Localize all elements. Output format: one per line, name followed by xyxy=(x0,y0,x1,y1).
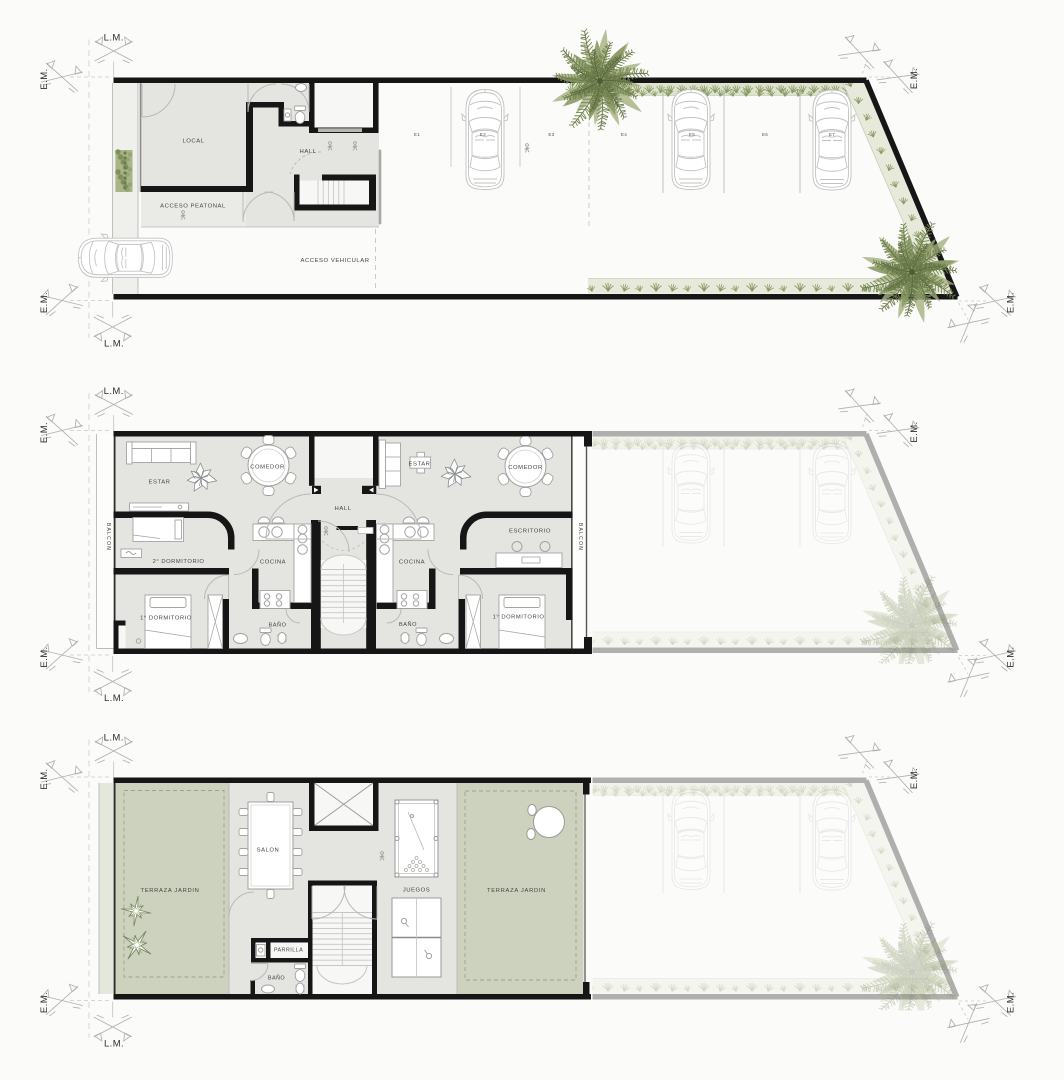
svg-text:E.M.: E.M. xyxy=(39,768,50,789)
svg-text:L.M.: L.M. xyxy=(104,1039,124,1050)
svg-text:1° DORMITORIO: 1° DORMITORIO xyxy=(140,616,192,622)
svg-text:LOCAL: LOCAL xyxy=(182,139,204,145)
svg-text:1° DORMITORIO: 1° DORMITORIO xyxy=(493,615,545,621)
svg-text:BALCON: BALCON xyxy=(577,523,583,551)
svg-text:TERRAZA JARDIN: TERRAZA JARDIN xyxy=(487,888,546,894)
svg-text:COMEDOR: COMEDOR xyxy=(250,465,285,471)
svg-text:L.M.: L.M. xyxy=(104,386,124,397)
svg-text:PARRILLA: PARRILLA xyxy=(274,948,303,954)
svg-text:L.M.: L.M. xyxy=(104,33,124,44)
svg-text:E.M.: E.M. xyxy=(39,68,50,89)
svg-text:E.M.: E.M. xyxy=(39,292,50,313)
svg-text:2° DORMITORIO: 2° DORMITORIO xyxy=(153,559,205,565)
svg-text:E3: E3 xyxy=(548,132,554,137)
svg-text:E.M.: E.M. xyxy=(1006,292,1017,313)
svg-text:E.M.: E.M. xyxy=(39,646,50,667)
svg-text:JUEGOS: JUEGOS xyxy=(403,888,431,894)
svg-text:TERRAZA JARDIN: TERRAZA JARDIN xyxy=(140,888,199,894)
svg-text:HALL: HALL xyxy=(300,149,317,155)
svg-text:L.M.: L.M. xyxy=(104,733,124,744)
svg-text:L.M.: L.M. xyxy=(104,693,124,704)
svg-text:SALON: SALON xyxy=(257,848,280,854)
svg-text:E.M.: E.M. xyxy=(1006,646,1017,667)
svg-text:COCINA: COCINA xyxy=(260,560,286,566)
svg-text:ESCRITORIO: ESCRITORIO xyxy=(509,529,551,535)
svg-text:E6: E6 xyxy=(762,132,768,137)
svg-text:BAÑO: BAÑO xyxy=(399,621,417,628)
svg-text:BAÑO: BAÑO xyxy=(268,622,286,629)
svg-text:E.M.: E.M. xyxy=(39,422,50,443)
svg-text:E7: E7 xyxy=(829,132,835,137)
svg-text:E.M.: E.M. xyxy=(39,992,50,1013)
svg-text:E.M.: E.M. xyxy=(909,421,920,442)
svg-text:E.M.: E.M. xyxy=(1006,992,1017,1013)
svg-text:ACCESO VEHICULAR: ACCESO VEHICULAR xyxy=(300,258,369,264)
svg-text:COMEDOR: COMEDOR xyxy=(508,465,543,471)
svg-text:COCINA: COCINA xyxy=(399,560,425,566)
svg-text:E.M.: E.M. xyxy=(909,68,920,89)
svg-text:E2: E2 xyxy=(480,132,486,137)
svg-text:BAÑO: BAÑO xyxy=(268,975,286,982)
svg-text:BALCON: BALCON xyxy=(105,523,111,551)
svg-text:ESTAR: ESTAR xyxy=(409,462,431,468)
svg-text:E4: E4 xyxy=(621,132,627,137)
svg-text:E1: E1 xyxy=(414,132,420,137)
svg-text:ACCESO PEATONAL: ACCESO PEATONAL xyxy=(160,204,226,210)
svg-text:E.M.: E.M. xyxy=(909,768,920,789)
svg-text:E5: E5 xyxy=(689,132,695,137)
svg-text:ESTAR: ESTAR xyxy=(149,480,171,486)
svg-text:L.M.: L.M. xyxy=(104,339,124,350)
svg-text:HALL: HALL xyxy=(335,506,352,512)
